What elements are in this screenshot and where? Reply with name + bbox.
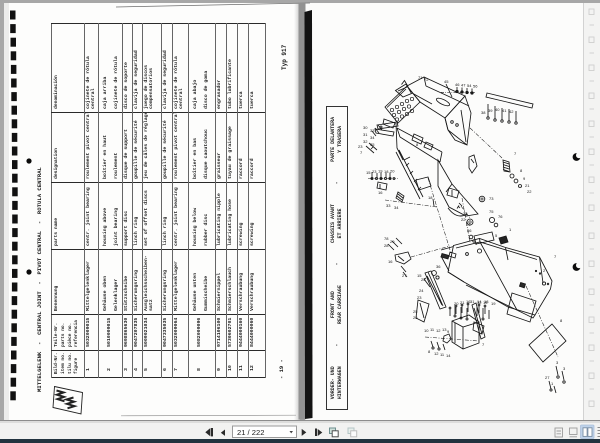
svg-text:21 / 222: 21 / 222 — [237, 428, 264, 437]
